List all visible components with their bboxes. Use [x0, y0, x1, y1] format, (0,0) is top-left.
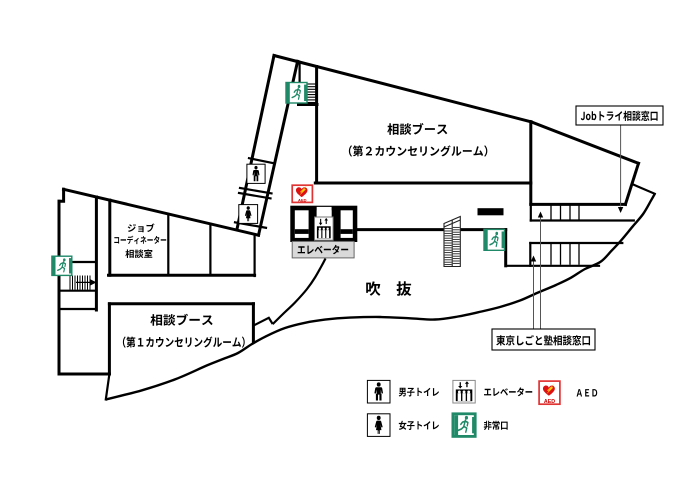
svg-text:AED: AED	[544, 399, 555, 405]
svg-text:AED: AED	[298, 197, 307, 202]
